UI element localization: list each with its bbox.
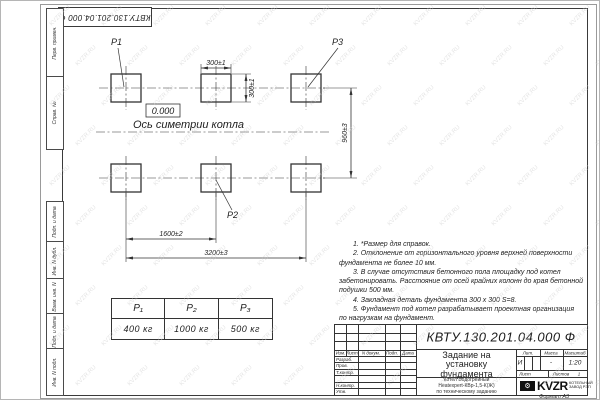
kvzr-logo-caption: КОТЕЛЬНЫЙ ЗАВОД РЭП bbox=[569, 381, 593, 390]
notes-block: 1. *Размер для справок. 2. Отклонение от… bbox=[339, 240, 591, 324]
dim-col-spacing: 1600±2 bbox=[159, 231, 182, 238]
tb-row-prov: Пров. bbox=[336, 363, 348, 368]
kvzr-logo-text: KVZR bbox=[537, 379, 568, 393]
tb-col-ndokum: N докум. bbox=[362, 351, 380, 356]
margin-cell-inv-dubl: Инв. N дубл. bbox=[46, 241, 64, 280]
dim-row-spacing: 960±3 bbox=[342, 123, 349, 143]
tb-scale-label: Масштаб bbox=[564, 351, 585, 356]
loads-value-p1: 400 кг bbox=[112, 319, 165, 339]
margin-cell-perv-primen: Перв. примен. bbox=[46, 8, 64, 78]
tb-col-list: Лист bbox=[346, 351, 358, 356]
tb-sheets-label: Листов bbox=[553, 371, 569, 376]
dimension-lines bbox=[126, 68, 351, 258]
tb-col-data: Дата bbox=[402, 351, 414, 356]
tb-sheets-value: 1 bbox=[578, 371, 581, 376]
elevation-value: 0.000 bbox=[152, 106, 175, 116]
margin-cell-podp-data-1: Подп. и дата bbox=[46, 201, 64, 243]
loads-header-p2: Р₂ bbox=[165, 299, 218, 319]
corner-stamp-docnumber: КВТУ.130.201.04.000 Ф bbox=[59, 13, 151, 22]
format-label: Формат А3 bbox=[539, 394, 569, 400]
tb-mass-value: - bbox=[550, 360, 552, 367]
tb-row-nkontr: Н.контр. bbox=[336, 383, 355, 388]
dim-pad-width: 300±1 bbox=[206, 60, 226, 67]
margin-cell-podp-data-2: Подп. и дата bbox=[46, 313, 64, 350]
pad-label-p2: Р2 bbox=[227, 210, 238, 220]
tb-sheet-label: Лист bbox=[519, 371, 531, 376]
tb-lit-label: Лит. bbox=[523, 351, 534, 356]
foundation-plan: Р1 Р3 Р2 0.000 Ось симетрии котла 300±1 … bbox=[91, 26, 371, 271]
pad-label-p3: Р3 bbox=[332, 37, 343, 47]
margin-cell-sprav-no: Справ. № bbox=[46, 76, 64, 150]
tb-drawing-name: Задание на установку фундамента bbox=[417, 351, 516, 379]
loads-value-p2: 1000 кг bbox=[165, 319, 218, 339]
symmetry-axis-label: Ось симетрии котла bbox=[133, 119, 244, 131]
dim-total-width: 3200±3 bbox=[204, 250, 227, 257]
drawing-sheet: КВТУ.130.201.04.000 Ф Перв. примен. Спра… bbox=[0, 0, 600, 400]
tb-lit-value: И bbox=[518, 360, 523, 367]
pad-label-p1: Р1 bbox=[111, 37, 122, 47]
tb-col-podp: Подп. bbox=[386, 351, 398, 356]
tb-col-izm: Изм. bbox=[336, 351, 346, 356]
loads-header-p1: Р₁ bbox=[112, 299, 165, 319]
loads-table: Р₁ Р₂ Р₃ 400 кг 1000 кг 500 кг bbox=[111, 298, 273, 340]
tb-product: Котел Водогрейный Heatexpert-КВр-1,5-К(Ж… bbox=[417, 378, 516, 396]
loads-header-p3: Р₃ bbox=[219, 299, 272, 319]
centerlines bbox=[96, 66, 331, 200]
loads-value-p3: 500 кг bbox=[219, 319, 272, 339]
margin-cell-vzam-inv: Взам. инв. N bbox=[46, 278, 64, 315]
tb-row-utv: Утв. bbox=[336, 389, 346, 394]
tb-doc-number: КВТУ.130.201.04.000 Ф bbox=[426, 330, 575, 345]
tb-row-razrab: Разраб. bbox=[336, 357, 352, 362]
tb-scale-value: 1:20 bbox=[569, 360, 582, 367]
margin-cell-inv-podl: Инв. N подл. bbox=[46, 348, 64, 396]
dim-pad-height: 300±1 bbox=[249, 78, 256, 98]
kvzr-logo-icon: ⚙ bbox=[520, 381, 535, 391]
title-block: Изм. Лист N докум. Подп. Дата Разраб. Пр… bbox=[334, 324, 588, 396]
corner-stamp: КВТУ.130.201.04.000 Ф bbox=[58, 7, 152, 27]
tb-row-tkontr: Т.контр. bbox=[336, 370, 354, 375]
tb-mass-label: Масса bbox=[544, 351, 557, 356]
